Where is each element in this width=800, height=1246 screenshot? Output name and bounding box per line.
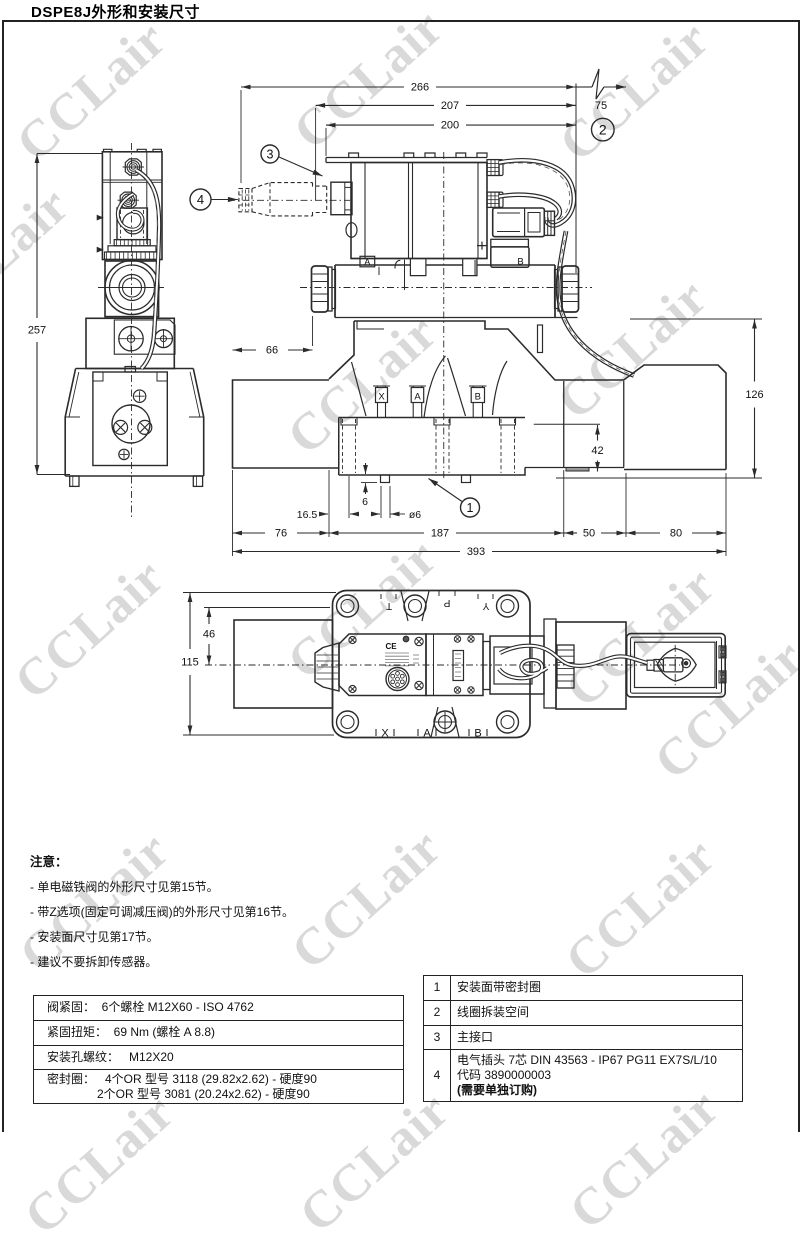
svg-text:75: 75 [595,100,607,112]
svg-text:46: 46 [203,629,215,641]
svg-text:42: 42 [591,445,603,457]
svg-text:B: B [475,392,481,403]
svg-text:A: A [414,392,421,403]
svg-text:16.5: 16.5 [297,509,318,521]
svg-text:2: 2 [599,122,607,138]
svg-text:A: A [364,257,370,267]
svg-text:200: 200 [441,120,459,132]
svg-text:X: X [381,728,389,740]
svg-text:126: 126 [745,389,763,401]
svg-text:76: 76 [275,528,287,540]
svg-text:115: 115 [181,657,199,669]
svg-text:207: 207 [441,100,459,112]
svg-text:B: B [474,728,481,740]
svg-text:66: 66 [266,345,278,357]
svg-text:T: T [386,600,392,611]
svg-text:50: 50 [583,528,595,540]
svg-text:A: A [423,728,431,740]
svg-text:1: 1 [467,501,474,515]
svg-text:3: 3 [267,148,274,162]
svg-text:80: 80 [670,528,682,540]
svg-text:ø6: ø6 [409,509,421,521]
svg-text:6: 6 [362,496,368,508]
svg-text:X: X [378,392,385,403]
svg-text:266: 266 [411,82,429,94]
svg-text:187: 187 [431,528,449,540]
svg-text:393: 393 [467,546,485,558]
svg-text:B: B [517,257,523,268]
svg-text:4: 4 [197,192,204,207]
svg-text:P: P [443,597,450,608]
svg-text:257: 257 [28,325,46,337]
svg-text:Y: Y [482,600,489,611]
svg-text:CE: CE [385,642,397,651]
